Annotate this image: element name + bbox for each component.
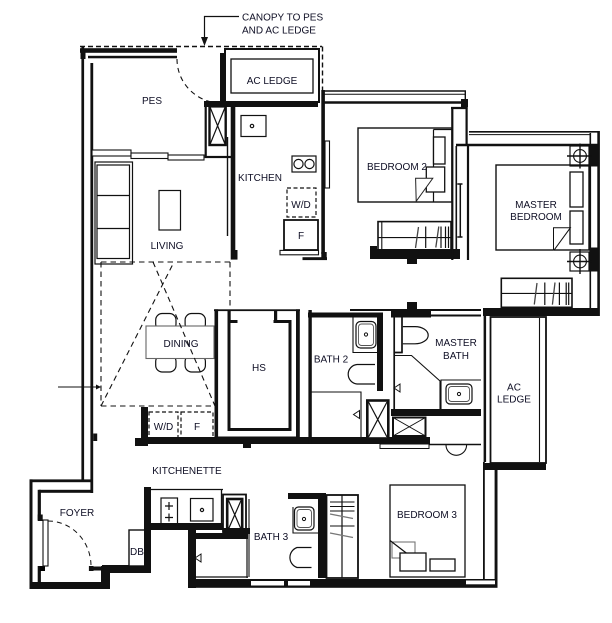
svg-text:BATH 2: BATH 2 (314, 355, 349, 366)
svg-text:BEDROOM: BEDROOM (510, 212, 562, 223)
svg-text:BATH: BATH (443, 351, 469, 362)
svg-text:LEDGE: LEDGE (497, 395, 531, 406)
svg-text:AC: AC (507, 383, 521, 394)
svg-text:DB: DB (130, 547, 144, 558)
svg-text:AC LEDGE: AC LEDGE (247, 76, 298, 87)
svg-text:CANOPY TO PES: CANOPY TO PES (242, 13, 323, 24)
svg-text:KITCHEN: KITCHEN (238, 173, 282, 184)
svg-text:LIVING: LIVING (151, 241, 184, 252)
svg-text:BEDROOM 3: BEDROOM 3 (397, 510, 457, 521)
svg-text:F: F (194, 422, 200, 433)
svg-text:BEDROOM 2: BEDROOM 2 (367, 162, 427, 173)
svg-text:KITCHENETTE: KITCHENETTE (152, 466, 222, 477)
svg-text:HS: HS (252, 363, 266, 374)
svg-text:MASTER: MASTER (435, 338, 477, 349)
svg-text:MASTER: MASTER (515, 200, 557, 211)
svg-text:W/D: W/D (154, 422, 173, 433)
svg-text:AND AC LEDGE: AND AC LEDGE (242, 26, 316, 37)
svg-text:BATH 3: BATH 3 (254, 532, 289, 543)
svg-text:PES: PES (142, 96, 162, 107)
svg-text:FOYER: FOYER (60, 508, 94, 519)
svg-text:DINING: DINING (164, 339, 199, 350)
svg-text:W/D: W/D (291, 200, 310, 211)
svg-text:F: F (298, 231, 304, 242)
